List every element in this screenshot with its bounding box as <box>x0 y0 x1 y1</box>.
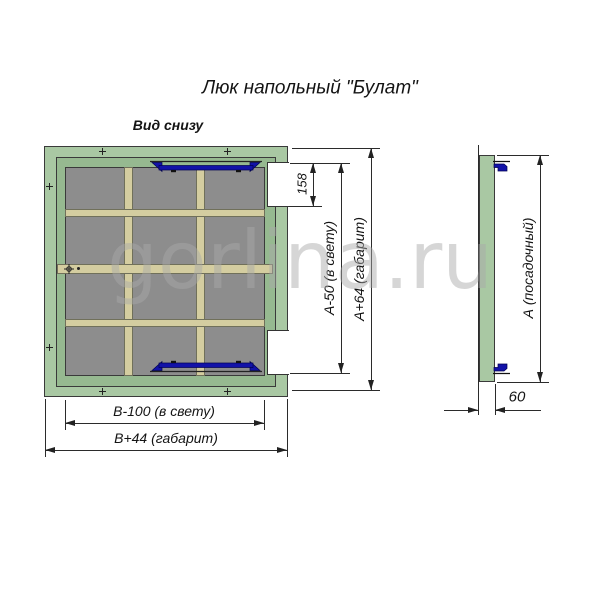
extension-line <box>264 400 265 430</box>
latch-bottom-icon <box>149 359 263 373</box>
dim-width-overall: В+44 (габарит) <box>114 431 218 445</box>
drawing-canvas: Люк напольный "Булат" Вид снизу <box>0 0 600 600</box>
dot-marker-icon <box>77 267 80 270</box>
arrow-down-icon <box>537 372 543 382</box>
arrow-left-icon <box>495 407 505 413</box>
arrow-up-icon <box>537 155 543 165</box>
plus-marker-icon <box>224 388 231 395</box>
plus-marker-icon <box>99 388 106 395</box>
extension-line <box>289 206 322 207</box>
arrow-down-icon <box>338 363 344 373</box>
view-label: Вид снизу <box>133 118 203 132</box>
dim-width-clear: В-100 (в свету) <box>113 404 215 418</box>
dim-depth: 60 <box>509 390 526 405</box>
extension-line <box>292 148 380 149</box>
arrow-right-icon <box>468 407 478 413</box>
crosshair-marker-icon <box>64 264 74 274</box>
plus-marker-icon <box>46 344 53 351</box>
arrow-up-icon <box>310 163 316 173</box>
arrow-down-icon <box>310 196 316 206</box>
extension-line <box>292 390 380 391</box>
stiffener-bar-horizontal-3 <box>65 319 265 327</box>
watermark: gorlina.ru <box>107 214 493 307</box>
hinge-cutout-bottom <box>267 330 289 375</box>
dim-line-width-clear <box>65 423 264 424</box>
dim-line-seat-height <box>540 155 541 382</box>
drawing-title: Люк напольный "Булат" <box>202 79 418 98</box>
arrow-up-icon <box>338 163 344 173</box>
arrow-left-icon <box>65 420 75 426</box>
arrow-down-icon <box>368 380 374 390</box>
arrow-right-icon <box>277 447 287 453</box>
dim-line-width-overall <box>45 450 287 451</box>
hinge-top-icon <box>493 160 511 174</box>
arrow-left-icon <box>45 447 55 453</box>
hinge-bottom-icon <box>493 361 511 375</box>
extension-line <box>287 399 288 457</box>
extension-line <box>497 382 549 383</box>
dim-hinge-offset: 158 <box>296 173 309 195</box>
extension-line <box>290 373 350 374</box>
dim-seat-height: А (посадочный) <box>521 218 535 319</box>
plus-marker-icon <box>99 148 106 155</box>
plus-marker-icon <box>46 183 53 190</box>
hinge-cutout-top <box>267 162 289 207</box>
arrow-up-icon <box>368 148 374 158</box>
plus-marker-icon <box>224 148 231 155</box>
latch-top-icon <box>149 160 263 174</box>
arrow-right-icon <box>254 420 264 426</box>
